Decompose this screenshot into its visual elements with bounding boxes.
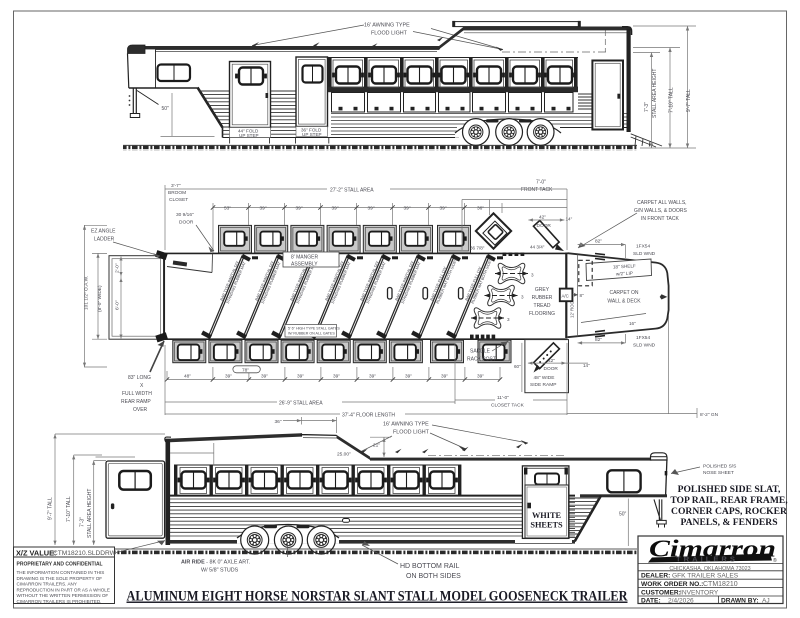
svg-text:36": 36" [275,419,282,425]
svg-text:60": 60" [514,364,521,369]
svg-text:3: 3 [521,295,524,300]
svg-text:48" WIDE: 48" WIDE [534,375,555,381]
svg-text:CIMARRON TRAILERS IS PROHIBITE: CIMARRON TRAILERS IS PROHIBITED. [17,599,102,604]
svg-text:SHEETS: SHEETS [530,521,563,530]
svg-text:DOOR: DOOR [544,366,559,372]
svg-text:DOOR: DOOR [537,223,552,229]
svg-text:CTM18210.SLDDRW: CTM18210.SLDDRW [53,550,117,557]
svg-text:8'-2" GN: 8'-2" GN [700,412,719,418]
svg-text:AJ: AJ [762,598,770,605]
svg-text:FRONT TACK: FRONT TACK [521,187,553,193]
svg-text:39": 39" [369,374,376,380]
svg-text:WALL & DECK: WALL & DECK [607,299,641,305]
svg-text:DRAWING IS THE SOLE PROPERTY O: DRAWING IS THE SOLE PROPERTY OF [17,576,103,581]
svg-text:26'-9" STALL AREA: 26'-9" STALL AREA [279,401,323,407]
svg-text:50": 50" [162,106,170,112]
svg-text:NOSE SHEET: NOSE SHEET [703,470,734,476]
svg-text:AIR RIDE - 8K 0" AXLE ART.: AIR RIDE - 8K 0" AXLE ART. [181,560,250,566]
svg-text:CTM18210: CTM18210 [703,581,738,588]
svg-text:GREY: GREY [535,287,550,293]
svg-text:14": 14" [566,217,573,222]
svg-text:9'-7" TALL: 9'-7" TALL [686,89,692,112]
svg-text:78": 78" [242,367,249,373]
svg-text:(8'-0" WIDE): (8'-0" WIDE) [97,285,103,312]
svg-text:36 7/8": 36 7/8" [470,246,485,251]
svg-text:RACK POST: RACK POST [467,357,496,363]
svg-text:W/ RUBBER ON ALL GATES: W/ RUBBER ON ALL GATES [288,332,335,336]
svg-text:G/N WALLS, & DOORS: G/N WALLS, & DOORS [634,208,688,214]
svg-text:21": 21" [373,443,380,449]
svg-text:W/ 5/8" STUDS: W/ 5/8" STUDS [201,568,239,574]
svg-text:PANELS, & FENDERS: PANELS, & FENDERS [680,517,777,528]
svg-text:HD BOTTOM RAIL: HD BOTTOM RAIL [400,563,459,570]
svg-text:39": 39" [404,206,411,212]
svg-text:TOP RAIL, REAR FRAME,: TOP RAIL, REAR FRAME, [670,495,788,506]
svg-text:9'-7" TALL: 9'-7" TALL [48,497,54,520]
svg-text:WORK ORDER NO.:: WORK ORDER NO.: [641,581,703,588]
svg-text:7'-3": 7'-3" [80,517,86,527]
svg-text:CLOSET TACK: CLOSET TACK [491,403,525,409]
svg-text:1FX54: 1FX54 [636,244,650,250]
svg-text:83" LONG: 83" LONG [128,375,151,381]
svg-text:2'-0": 2'-0" [115,263,121,273]
svg-text:39": 39" [333,374,340,380]
svg-text:PROPRIETARY AND CONFIDENTIAL: PROPRIETARY AND CONFIDENTIAL [17,562,103,568]
svg-text:CARPET ALL WALLS,: CARPET ALL WALLS, [637,200,687,206]
svg-text:UP STEP: UP STEP [239,133,259,138]
svg-text:7'-10" TALL: 7'-10" TALL [669,87,675,113]
svg-text:36": 36" [477,206,484,212]
svg-text:WITHOUT THE WRITTEN PERMISSION: WITHOUT THE WRITTEN PERMISSION OF [17,593,109,598]
svg-text:16' AWNING TYPE: 16' AWNING TYPE [364,23,410,29]
svg-text:3: 3 [507,317,510,322]
svg-text:LADDER: LADDER [94,237,115,243]
svg-text:42": 42" [548,358,555,364]
svg-text:EZ ANGLE: EZ ANGLE [91,229,116,235]
svg-text:FLOOD LIGHT: FLOOD LIGHT [371,31,408,37]
svg-text:37'-4" FLOOR LENGTH: 37'-4" FLOOR LENGTH [342,413,395,419]
svg-text:6'-0": 6'-0" [115,300,121,310]
svg-text:CLOSET: CLOSET [169,197,188,203]
svg-text:®: ® [773,557,777,564]
svg-text:39": 39" [225,374,232,380]
svg-text:82": 82" [595,337,602,343]
svg-text:8' MANGER: 8' MANGER [291,255,318,261]
svg-text:16' AWNING TYPE: 16' AWNING TYPE [383,422,429,428]
svg-text:A/C: A/C [562,294,569,299]
svg-text:39": 39" [297,374,304,380]
svg-text:SLD WND: SLD WND [633,251,656,257]
svg-text:39": 39" [261,374,268,380]
svg-text:TREAD: TREAD [534,303,551,309]
svg-text:WHITE: WHITE [532,511,562,520]
svg-text:BROOM: BROOM [168,190,186,196]
svg-text:3'-7": 3'-7" [171,183,181,189]
svg-text:GFK TRAILER SALES: GFK TRAILER SALES [672,573,739,580]
svg-text:7'-0": 7'-0" [536,180,546,186]
svg-text:101 1/2" O.A.W.: 101 1/2" O.A.W. [84,276,90,310]
svg-text:ASSEMBLY: ASSEMBLY [291,262,318,268]
svg-text:POLISHED SIDE SLAT,: POLISHED SIDE SLAT, [678,484,781,495]
svg-text:39": 39" [477,374,484,380]
svg-text:FLOORING: FLOORING [529,311,555,317]
svg-text:30 9/16": 30 9/16" [176,212,194,218]
svg-text:50": 50" [619,512,627,518]
svg-text:25.00°: 25.00° [337,452,351,458]
svg-text:5' 6" HIGH TYPE STALL GATES: 5' 6" HIGH TYPE STALL GATES [288,327,340,331]
svg-text:X/Z VALUE:: X/Z VALUE: [16,549,57,558]
svg-text:DOOR: DOOR [179,220,194,226]
svg-text:7'-10" TALL: 7'-10" TALL [66,496,72,522]
svg-text:FLOOD LIGHT: FLOOD LIGHT [393,430,430,436]
svg-text:SADDLE: SADDLE [470,349,491,355]
svg-text:DRAWN BY:: DRAWN BY: [721,598,759,605]
svg-text:7'-3": 7'-3" [644,102,650,112]
svg-text:w/2" LIP: w/2" LIP [616,271,633,277]
svg-text:SLD WND: SLD WND [633,343,656,349]
svg-text:CORNER CAPS, ROCKER: CORNER CAPS, ROCKER [671,506,788,517]
svg-text:DEALER:: DEALER: [641,573,670,580]
svg-text:UP STEP: UP STEP [302,132,322,137]
svg-text:REAR RAMP: REAR RAMP [121,399,151,405]
svg-text:CIMARRON TRAILERS. ANY: CIMARRON TRAILERS. ANY [17,582,77,587]
svg-text:48": 48" [184,374,191,380]
svg-text:POLISHED S/S: POLISHED S/S [703,464,736,470]
svg-text:ALUMINUM EIGHT HORSE NORSTAR S: ALUMINUM EIGHT HORSE NORSTAR SLANT STALL… [127,589,628,605]
svg-text:THE INFORMATION CONTAINED IN T: THE INFORMATION CONTAINED IN THIS [17,570,105,575]
svg-text:SIDE RAMP: SIDE RAMP [530,382,556,388]
svg-text:TRAILERS: TRAILERS [676,555,738,564]
svg-text:REPRODUCTION IN PART OR AS A W: REPRODUCTION IN PART OR AS A WHOLE [17,587,110,592]
svg-text:CARPET ON: CARPET ON [609,290,638,296]
svg-text:82": 82" [595,239,602,245]
svg-text:42": 42" [539,214,546,220]
svg-text:FULL WIDTH: FULL WIDTH [122,391,152,397]
svg-text:39": 39" [441,374,448,380]
svg-text:39": 39" [296,206,303,212]
svg-text:39": 39" [260,206,267,212]
svg-text:3: 3 [531,273,534,278]
svg-text:16": 16" [629,321,636,326]
svg-text:RUBBER: RUBBER [532,295,553,301]
svg-text:8": 8" [580,293,585,298]
svg-text:STALL AREA HEIGHT: STALL AREA HEIGHT [87,489,93,538]
svg-text:1FX54: 1FX54 [636,335,650,341]
svg-text:14": 14" [583,363,590,368]
svg-text:CUSTOMER:: CUSTOMER: [641,590,681,597]
svg-text:11'-0": 11'-0" [497,395,509,401]
svg-text:2/4/2026: 2/4/2026 [668,598,694,605]
svg-text:27'-2" STALL AREA: 27'-2" STALL AREA [330,188,374,194]
svg-text:39": 39" [405,374,412,380]
svg-text:39": 39" [332,206,339,212]
svg-text:39": 39" [368,206,375,212]
svg-text:STALL AREA HEIGHT: STALL AREA HEIGHT [652,69,658,118]
svg-text:INVENTORY: INVENTORY [680,590,719,597]
svg-text:39": 39" [440,206,447,212]
svg-text:44 3/4": 44 3/4" [530,245,545,250]
svg-text:OVER: OVER [133,407,148,413]
svg-text:53": 53" [224,206,231,212]
svg-text:ON BOTH SIDES: ON BOTH SIDES [406,573,461,580]
svg-text:IN FRONT TACK: IN FRONT TACK [641,216,679,222]
svg-text:DATE:: DATE: [641,598,661,605]
